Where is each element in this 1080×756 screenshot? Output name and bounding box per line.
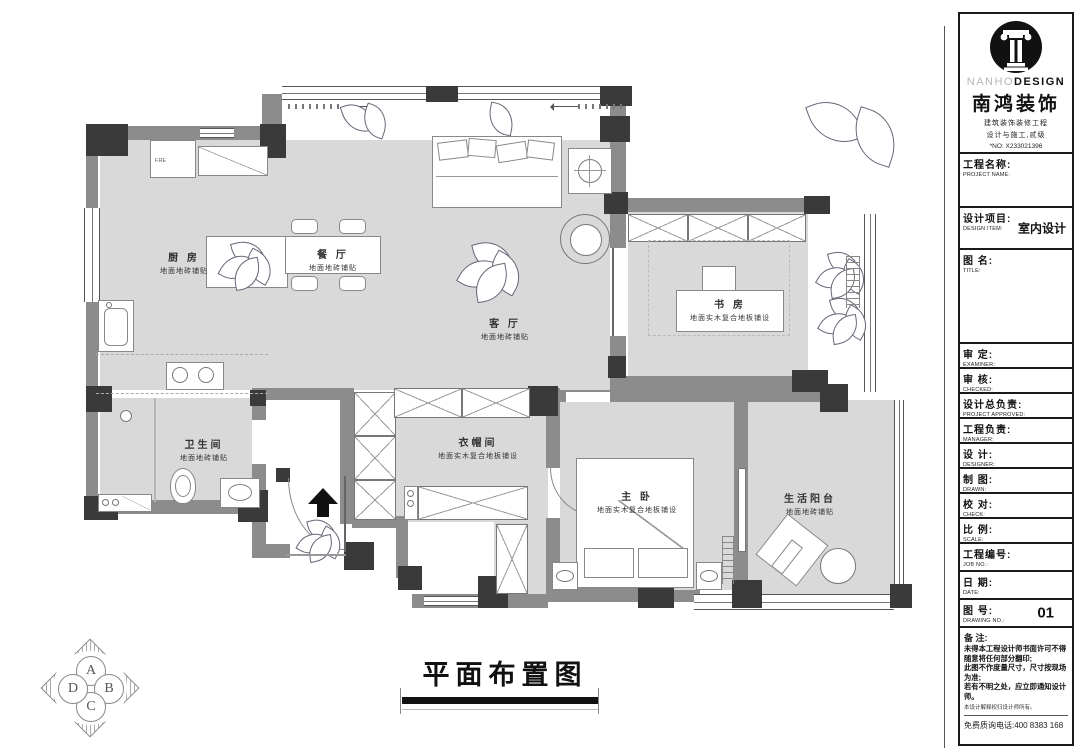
field-design-item: 设计项目: DESIGN ITEM: 室内设计 (960, 208, 1072, 250)
curtain-symbol (578, 104, 626, 109)
field-designer: 设 计: DESIGNER: (960, 444, 1072, 469)
wardrobe (354, 392, 396, 436)
column-block (398, 566, 422, 590)
curtain-arrow (554, 106, 578, 107)
room-label-kitchen: 厨 房 地面地砖铺贴 (160, 249, 208, 276)
elevation-compass: A B C D (38, 636, 142, 740)
wall-segment (610, 98, 626, 200)
wardrobe (354, 480, 396, 520)
entry-door-leaf (344, 476, 346, 552)
drawing-number: 01 (1037, 605, 1054, 622)
room-label-study: 书 房 地面实木复合地板铺设 (690, 296, 770, 323)
field-date: 日 期: DATE: (960, 572, 1072, 600)
bed-pillow (638, 548, 688, 578)
field-examiner: 审 定: EXAMINER: (960, 344, 1072, 369)
room-label-master-bedroom: 主 卧 地面实木复合地板铺设 (597, 488, 677, 515)
faucet-icon (106, 302, 112, 308)
column-block (426, 86, 458, 102)
plant-icon (822, 296, 868, 342)
kitchen-counter (198, 146, 268, 176)
dining-chair (339, 219, 366, 234)
column-block (600, 116, 630, 142)
wardrobe (748, 214, 806, 242)
towel-rack (722, 536, 734, 584)
field-project-approved: 设计总负责: PROJECT APPROVED: (960, 394, 1072, 419)
curtain-symbol (288, 104, 344, 109)
column-block (890, 584, 912, 608)
column-block (86, 124, 128, 156)
fine-print: 本设计解释权归设计师所有。 (964, 703, 1068, 711)
window (84, 208, 100, 302)
dining-chair (291, 276, 318, 291)
washer-knob (112, 499, 119, 506)
column-logo-icon (989, 20, 1043, 74)
title-underline-tick (400, 688, 401, 714)
field-checked: 审 核: CHECKED: (960, 369, 1072, 394)
shower-divider (154, 398, 156, 502)
field-manager: 工程负责: MANAGER: (960, 419, 1072, 444)
wardrobe (354, 436, 396, 480)
burner-icon (198, 367, 214, 383)
appliance-knob (407, 500, 414, 507)
notes-title: 备 注: (964, 631, 1068, 644)
wardrobe (628, 214, 688, 242)
sliding-door (738, 468, 746, 552)
desk (702, 266, 736, 292)
window (694, 594, 894, 610)
room-label-balcony: 生活阳台 地面地砖铺贴 (784, 490, 836, 517)
dining-chair (339, 276, 366, 291)
wardrobe (394, 388, 462, 418)
entry-arrow-icon (308, 488, 338, 504)
washer-knob (102, 499, 109, 506)
entry-arrow-stem (317, 504, 329, 517)
column-block (732, 580, 762, 608)
field-drawing-no: 图 号: DRAWING NO.: 01 (960, 600, 1072, 628)
floor-plan-sheet: { "plan": { "drawing_title": "平面布置图", "c… (0, 0, 1080, 756)
door-opening (252, 420, 266, 464)
burner-icon (172, 367, 188, 383)
brand-subline: 建筑装饰装修工程 (963, 118, 1069, 128)
field-job-no: 工程编号: JOB NO.: (960, 544, 1072, 572)
plant-icon (462, 240, 522, 298)
title-block: NANHODESIGN 南鸿装饰 建筑装饰装修工程 设计与施工,贰级 *NO: … (958, 12, 1074, 746)
field-check: 校 对: CHECK: (960, 494, 1072, 519)
round-table (820, 548, 856, 584)
brand-license-no: *NO: X233021396 (963, 143, 1069, 150)
window (424, 596, 480, 606)
drawing-title: 平面布置图 (400, 653, 610, 692)
wardrobe (496, 524, 528, 594)
brand-cn: 南鸿装饰 (963, 89, 1069, 116)
table-lamp-icon (578, 159, 602, 183)
field-scale: 比 例: SCALE: (960, 519, 1072, 544)
brand-en: NANHODESIGN (963, 76, 1069, 88)
arrow-icon (546, 103, 554, 111)
hotline-phone: 免费质询电话:400 8383 168 (964, 715, 1068, 731)
plant-icon (485, 102, 517, 137)
threshold-line (286, 554, 346, 556)
door-opening (566, 392, 610, 402)
wall-segment (626, 198, 808, 212)
room-label-dining: 餐 厅 地面地砖铺贴 (309, 246, 357, 273)
vanity-basin (228, 484, 252, 501)
plant-icon (222, 240, 272, 286)
room-label-bathroom: 卫生间 地面地砖铺贴 (180, 436, 228, 463)
sofa-seat-line (436, 176, 558, 177)
appliance-knob (407, 490, 414, 497)
field-drawn: 制 图: DRAWN: (960, 469, 1072, 494)
company-logo-section: NANHODESIGN 南鸿装饰 建筑装饰装修工程 设计与施工,贰级 *NO: … (960, 14, 1072, 154)
column-block (344, 542, 374, 570)
notes-section: 备 注: 未得本工程设计师书面许可不得 随意将任何部分翻印; 此图不作度量尺寸，… (960, 628, 1072, 744)
ladder-rack (846, 256, 860, 308)
field-project-name: 工程名称: PROJECT NAME: (960, 154, 1072, 208)
wall-segment (252, 544, 290, 558)
column-block (604, 192, 628, 214)
shower-head-icon (120, 410, 132, 422)
nightstand-lamp-icon (556, 570, 574, 582)
toilet-bowl (175, 475, 191, 497)
column-block (608, 356, 626, 378)
column-block (600, 86, 632, 106)
washer-diagonal (122, 496, 150, 510)
fridge-label: F.RE (155, 158, 166, 164)
title-underline-tick (598, 688, 599, 714)
column-block (528, 386, 558, 416)
brand-subline: 设计与施工,贰级 (963, 130, 1069, 140)
room-label-closet: 衣帽间 地面实木复合地板铺设 (438, 434, 518, 461)
wardrobe (688, 214, 748, 242)
door-leaf (612, 248, 614, 336)
compass-letter-d: D (58, 674, 88, 704)
field-title: 图 名: TITLE: (960, 250, 1072, 344)
nightstand-lamp-icon (700, 570, 718, 582)
valve-dot (104, 401, 110, 407)
wardrobe (462, 388, 530, 418)
lamp-cross (589, 155, 590, 187)
dining-chair (291, 219, 318, 234)
title-underline-bar (402, 697, 598, 704)
sofa-pillow (526, 139, 555, 160)
window (200, 128, 234, 138)
title-underline-thin (402, 709, 598, 710)
sofa-pillow (437, 139, 469, 161)
sink-basin (104, 308, 128, 346)
wall-segment (626, 376, 796, 392)
armchair-seat (570, 224, 602, 256)
column-block (792, 370, 828, 392)
lamp-cross (574, 170, 606, 171)
bed-pillow (584, 548, 634, 578)
sheet-border-line (944, 26, 945, 748)
column-block (804, 196, 830, 214)
sofa-pillow (467, 138, 496, 158)
cabinet (418, 486, 528, 520)
window (894, 400, 904, 590)
room-label-living: 客 厅 地面地砖铺贴 (481, 315, 529, 342)
